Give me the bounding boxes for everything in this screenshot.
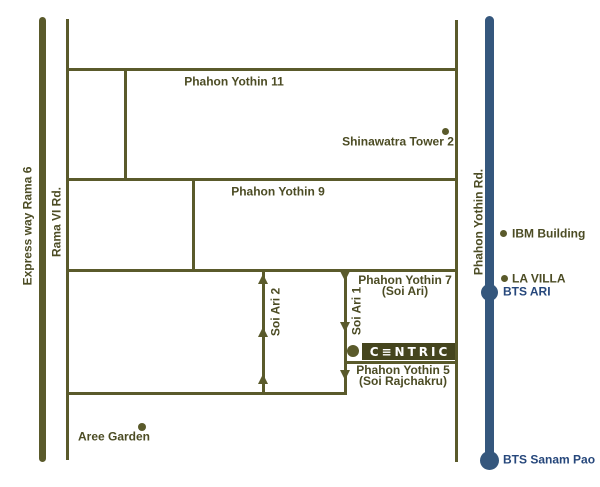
aree-garden-label: Aree Garden: [78, 432, 150, 443]
phahon-yothin-11-line: [66, 68, 458, 71]
up-arrow-icon: [258, 327, 268, 337]
phahon-yothin-road-label: Phahon Yothin Rd.: [474, 169, 485, 275]
down-arrow-icon: [340, 271, 350, 281]
soi-ari-1-label: Soi Ari 1: [352, 287, 363, 335]
soi-ari-2-label: Soi Ari 2: [271, 288, 282, 336]
phahon-yothin-9-line: [66, 178, 458, 181]
up-arrow-icon: [258, 274, 268, 284]
phahon-yothin-9-label: Phahon Yothin 9: [231, 187, 325, 198]
expressway-label: Express way Rama 6: [23, 167, 34, 286]
phahon-yothin-7-label-line2: (Soi Ari): [358, 286, 452, 297]
phahon-yothin-11-label: Phahon Yothin 11: [184, 77, 284, 88]
ibm-building-dot: [500, 230, 507, 237]
phahon-yothin-7-line: [66, 269, 458, 272]
connector-road-line-2: [192, 178, 195, 272]
down-arrow-icon: [340, 370, 350, 380]
centric-location-dot: [347, 345, 359, 357]
expressway-rama6-line: [39, 17, 46, 462]
location-map: Phahon Yothin 11 Phahon Yothin 9 Phahon …: [0, 0, 600, 487]
rama-vi-road-label: Rama VI Rd.: [52, 187, 63, 257]
bts-sanam-pao-station-marker: [480, 451, 499, 470]
up-arrow-icon: [258, 374, 268, 384]
bts-ari-station-marker: [481, 284, 498, 301]
la-villa-label: LA VILLA: [512, 274, 566, 285]
ibm-building-label: IBM Building: [512, 229, 585, 240]
phahon-yothin-5-line-west: [66, 392, 347, 395]
phahon-yothin-road-line: [455, 20, 458, 462]
shinawatra-tower-label: Shinawatra Tower 2: [342, 137, 454, 148]
down-arrow-icon: [340, 322, 350, 332]
bts-sanam-pao-label: BTS Sanam Pao: [503, 455, 595, 466]
bts-ari-label: BTS ARI: [503, 287, 551, 298]
bts-line: [485, 16, 494, 461]
centric-logo: C≡NTRIC: [362, 343, 455, 360]
la-villa-dot: [501, 275, 508, 282]
phahon-yothin-5-label: Phahon Yothin 5 (Soi Rajchakru): [356, 365, 450, 387]
phahon-yothin-5-label-line2: (Soi Rajchakru): [356, 376, 450, 387]
connector-road-line-1: [124, 68, 127, 181]
phahon-yothin-7-label: Phahon Yothin 7 (Soi Ari): [358, 275, 452, 297]
